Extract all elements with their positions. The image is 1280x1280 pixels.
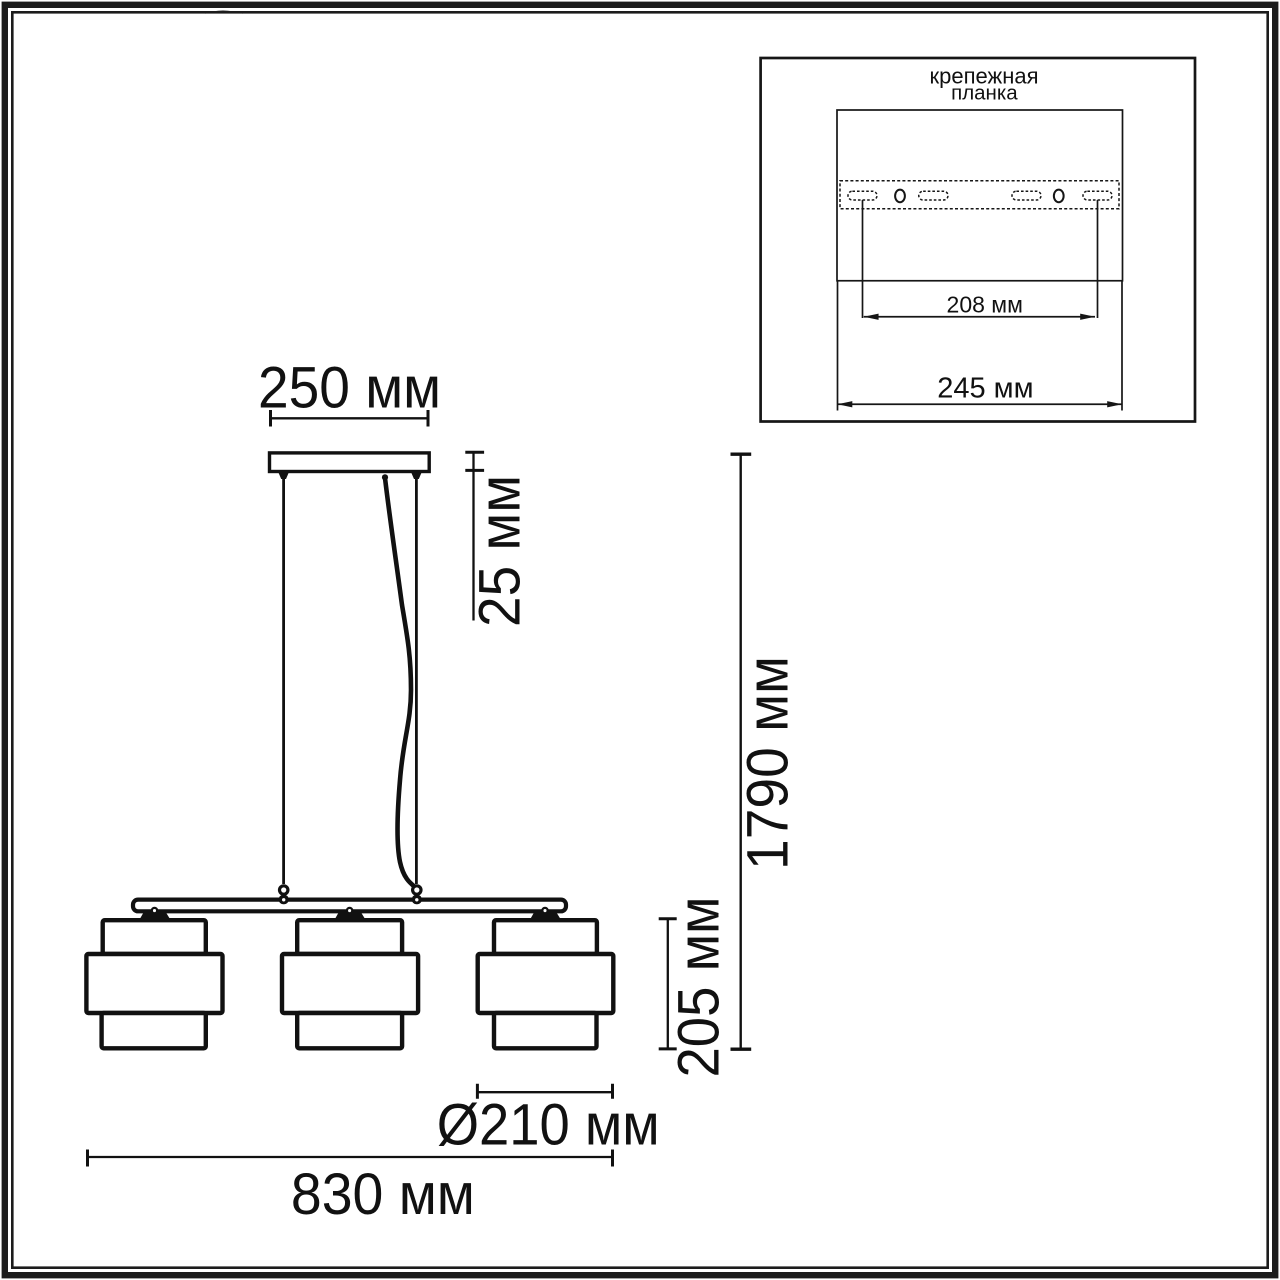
svg-text:245 мм: 245 мм bbox=[937, 373, 1033, 405]
svg-text:планка: планка bbox=[951, 82, 1018, 105]
svg-text:25 мм: 25 мм bbox=[468, 475, 533, 627]
svg-text:205 мм: 205 мм bbox=[667, 897, 732, 1078]
svg-text:250 мм: 250 мм bbox=[258, 356, 441, 421]
svg-text:1790 мм: 1790 мм bbox=[736, 656, 801, 870]
svg-text:830 мм: 830 мм bbox=[291, 1162, 475, 1227]
svg-text:208 мм: 208 мм bbox=[947, 292, 1023, 318]
svg-text:Ø210 мм: Ø210 мм bbox=[437, 1093, 660, 1158]
